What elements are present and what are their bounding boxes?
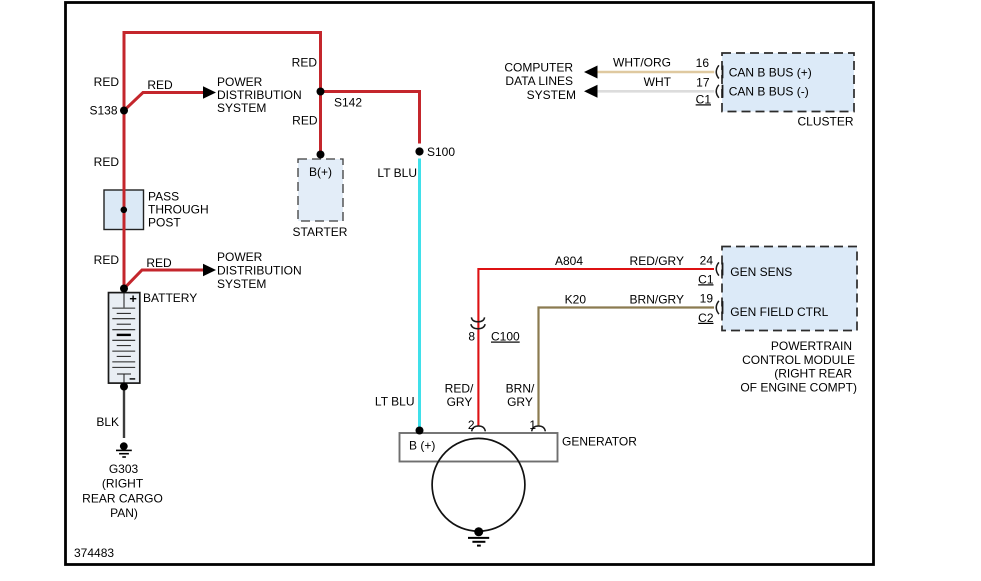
- svg-text:374483: 374483: [74, 546, 114, 560]
- svg-text:C100: C100: [491, 330, 520, 344]
- svg-text:17: 17: [696, 75, 710, 89]
- svg-text:GEN FIELD CTRL: GEN FIELD CTRL: [730, 305, 828, 319]
- svg-text:C1: C1: [698, 272, 714, 286]
- svg-text:DISTRIBUTION: DISTRIBUTION: [217, 264, 302, 278]
- svg-text:SYSTEM: SYSTEM: [217, 277, 266, 291]
- svg-text:POWER: POWER: [217, 250, 263, 264]
- svg-text:GENERATOR: GENERATOR: [562, 435, 637, 449]
- svg-text:RED: RED: [292, 114, 318, 128]
- svg-text:REAR CARGO: REAR CARGO: [82, 491, 163, 505]
- svg-text:SYSTEM: SYSTEM: [217, 101, 266, 115]
- svg-text:CAN B BUS (+): CAN B BUS (+): [729, 66, 812, 80]
- svg-text:POWERTRAIN: POWERTRAIN: [771, 339, 852, 353]
- svg-text:GRY: GRY: [447, 395, 473, 409]
- svg-text:DISTRIBUTION: DISTRIBUTION: [217, 88, 302, 102]
- svg-text:RED: RED: [94, 75, 120, 89]
- svg-text:CONTROL MODULE: CONTROL MODULE: [742, 353, 855, 367]
- svg-text:B(+): B(+): [309, 165, 332, 179]
- svg-text:1: 1: [529, 418, 536, 432]
- svg-text:STARTER: STARTER: [293, 225, 348, 239]
- svg-text:A804: A804: [555, 254, 583, 268]
- svg-text:RED: RED: [146, 256, 172, 270]
- svg-text:16: 16: [696, 56, 710, 70]
- svg-text:C2: C2: [698, 311, 714, 325]
- svg-text:RED: RED: [94, 253, 120, 267]
- svg-text:PAN): PAN): [110, 506, 138, 520]
- svg-text:RED: RED: [94, 155, 120, 169]
- svg-text:S142: S142: [334, 96, 362, 110]
- svg-text:S138: S138: [89, 104, 117, 118]
- svg-text:POST: POST: [148, 216, 181, 230]
- svg-text:LT BLU: LT BLU: [375, 395, 415, 409]
- svg-text:OF ENGINE COMPT): OF ENGINE COMPT): [740, 380, 857, 394]
- svg-text:S100: S100: [427, 145, 455, 159]
- svg-text:GRY: GRY: [507, 395, 533, 409]
- svg-text:19: 19: [700, 292, 714, 306]
- svg-text:CLUSTER: CLUSTER: [797, 114, 853, 128]
- svg-text:RED/GRY: RED/GRY: [630, 254, 684, 268]
- svg-text:8: 8: [468, 330, 475, 344]
- svg-text:POWER: POWER: [217, 75, 263, 89]
- svg-text:K20: K20: [565, 292, 587, 306]
- svg-text:BRN/: BRN/: [506, 382, 535, 396]
- svg-text:BATTERY: BATTERY: [143, 291, 197, 305]
- svg-text:RED: RED: [292, 56, 318, 70]
- svg-text:LT BLU: LT BLU: [377, 166, 417, 180]
- svg-text:CAN B BUS (-): CAN B BUS (-): [729, 84, 809, 98]
- svg-text:RED: RED: [147, 78, 173, 92]
- svg-text:24: 24: [700, 254, 714, 268]
- svg-text:GEN SENS: GEN SENS: [730, 265, 792, 279]
- svg-text:SYSTEM: SYSTEM: [527, 88, 576, 102]
- svg-text:COMPUTER: COMPUTER: [504, 60, 573, 74]
- svg-text:PASS: PASS: [148, 190, 179, 204]
- svg-text:BRN/GRY: BRN/GRY: [630, 292, 684, 306]
- svg-text:G303: G303: [109, 462, 139, 476]
- svg-text:BLK: BLK: [96, 415, 119, 429]
- svg-text:B (+): B (+): [409, 439, 435, 453]
- svg-text:WHT: WHT: [644, 75, 672, 89]
- svg-text:THROUGH: THROUGH: [148, 203, 209, 217]
- svg-text:(RIGHT REAR: (RIGHT REAR: [774, 367, 852, 381]
- svg-text:RED/: RED/: [445, 382, 474, 396]
- svg-text:2: 2: [468, 418, 475, 432]
- svg-text:DATA LINES: DATA LINES: [505, 74, 573, 88]
- svg-text:(RIGHT: (RIGHT: [102, 477, 144, 491]
- svg-text:C1: C1: [696, 92, 712, 106]
- svg-text:WHT/ORG: WHT/ORG: [613, 56, 671, 70]
